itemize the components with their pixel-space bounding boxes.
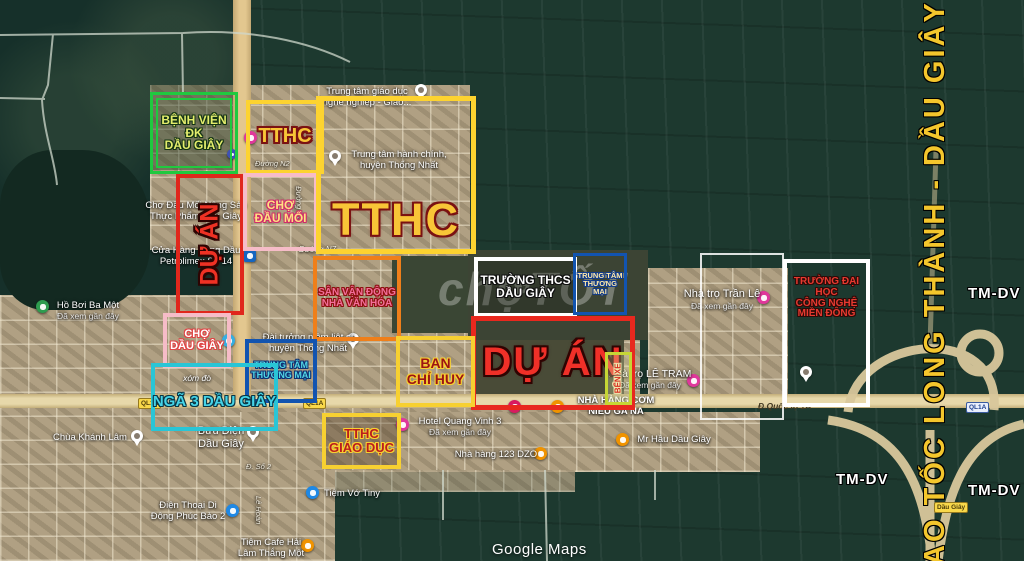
annotation-nga-3: NGÃ 3 DẦU GIÂY	[151, 363, 278, 431]
annotation-tthc-giao-duc: TTHC GIÁO DỤC	[322, 413, 401, 469]
poi-pagoda[interactable]: Chùa Khánh Lâm	[53, 432, 127, 443]
google-maps-watermark[interactable]: Google Maps	[492, 541, 587, 558]
education-center-pin-icon[interactable]	[415, 84, 427, 96]
highway-name-label: CAO TỐC LONG THÀNH - DẦU GIÂY	[915, 10, 955, 561]
poi-restaurant-123[interactable]: Nhà hàng 123 DZO	[455, 449, 537, 460]
zone-label-tmdv-3: TM-DV	[968, 482, 1021, 499]
zone-label-tmdv-1: TM-DV	[968, 285, 1021, 302]
annotation-dai-hoc: TRƯỜNG ĐẠI HỌC CÔNG NGHỆ MIỀN ĐÔNG	[783, 259, 870, 407]
poi-swimming-pool[interactable]: Hồ Bơi Ba MộtĐã xem gần đây	[57, 300, 119, 321]
restaurant-mrhau-icon[interactable]	[616, 433, 629, 446]
annotation-ban-chi-huy: BAN CHỈ HUY	[396, 336, 475, 407]
street-label-le-hoan: Lê Hoàn	[254, 496, 263, 524]
satellite-map-canvas[interactable]: Đường N7 Đường N2 Đường N3 Đ. Số 2 Lê Ho…	[0, 0, 1024, 561]
annotation-du-an-left: DỰ ÁN	[176, 174, 244, 315]
annotation-tthc-big: TTHC	[316, 96, 476, 254]
sock-shop-icon[interactable]	[306, 486, 319, 499]
annotation-cho-dau-giay: CHỢ DẦU GIÂY	[163, 313, 231, 368]
pagoda-icon[interactable]	[131, 430, 143, 442]
project-boundary-outline	[700, 253, 784, 420]
annotation-san-van-dong: SÂN VẬN ĐỘNG NHÀ VĂN HÓA	[313, 256, 401, 341]
annotation-tttm-top: TRUNG TÂM THƯƠNG MẠI	[573, 253, 627, 315]
street-label-d-so-2: Đ. Số 2	[246, 462, 271, 471]
poi-sock-shop[interactable]: Tiệm Vớ Tiny	[324, 488, 380, 499]
swimming-pool-icon[interactable]	[36, 300, 49, 313]
phone-shop-icon[interactable]	[226, 504, 239, 517]
road-shield-ql1a-east: QL1A	[966, 402, 989, 413]
annotation-tthc-small: TTHC	[246, 100, 324, 174]
zone-label-tmdv-2: TM-DV	[836, 471, 889, 488]
poi-mr-hau[interactable]: Mr Hầu Dầu Giây	[637, 434, 710, 445]
poi-phone-shop[interactable]: Điện Thoại Di Động Phúc Bảo 2	[151, 500, 225, 522]
annotation-cho-dau-moi: CHỢ ĐẦU MỐI	[243, 173, 318, 251]
poi-cafe[interactable]: Tiệm Cafe Hải Lâm Thắng Một	[238, 537, 304, 559]
annotation-truong-thcs: TRƯỜNG THCS DẦU GIÂY	[474, 257, 577, 317]
poi-hotel[interactable]: Hotel Quang Vinh 3Đã xem gần đây	[419, 416, 502, 437]
annotation-hospital: BỆNH VIỆN ĐK DẦU GIÂY	[150, 92, 238, 174]
annotation-ben-xe: BẾN XE	[605, 352, 632, 405]
